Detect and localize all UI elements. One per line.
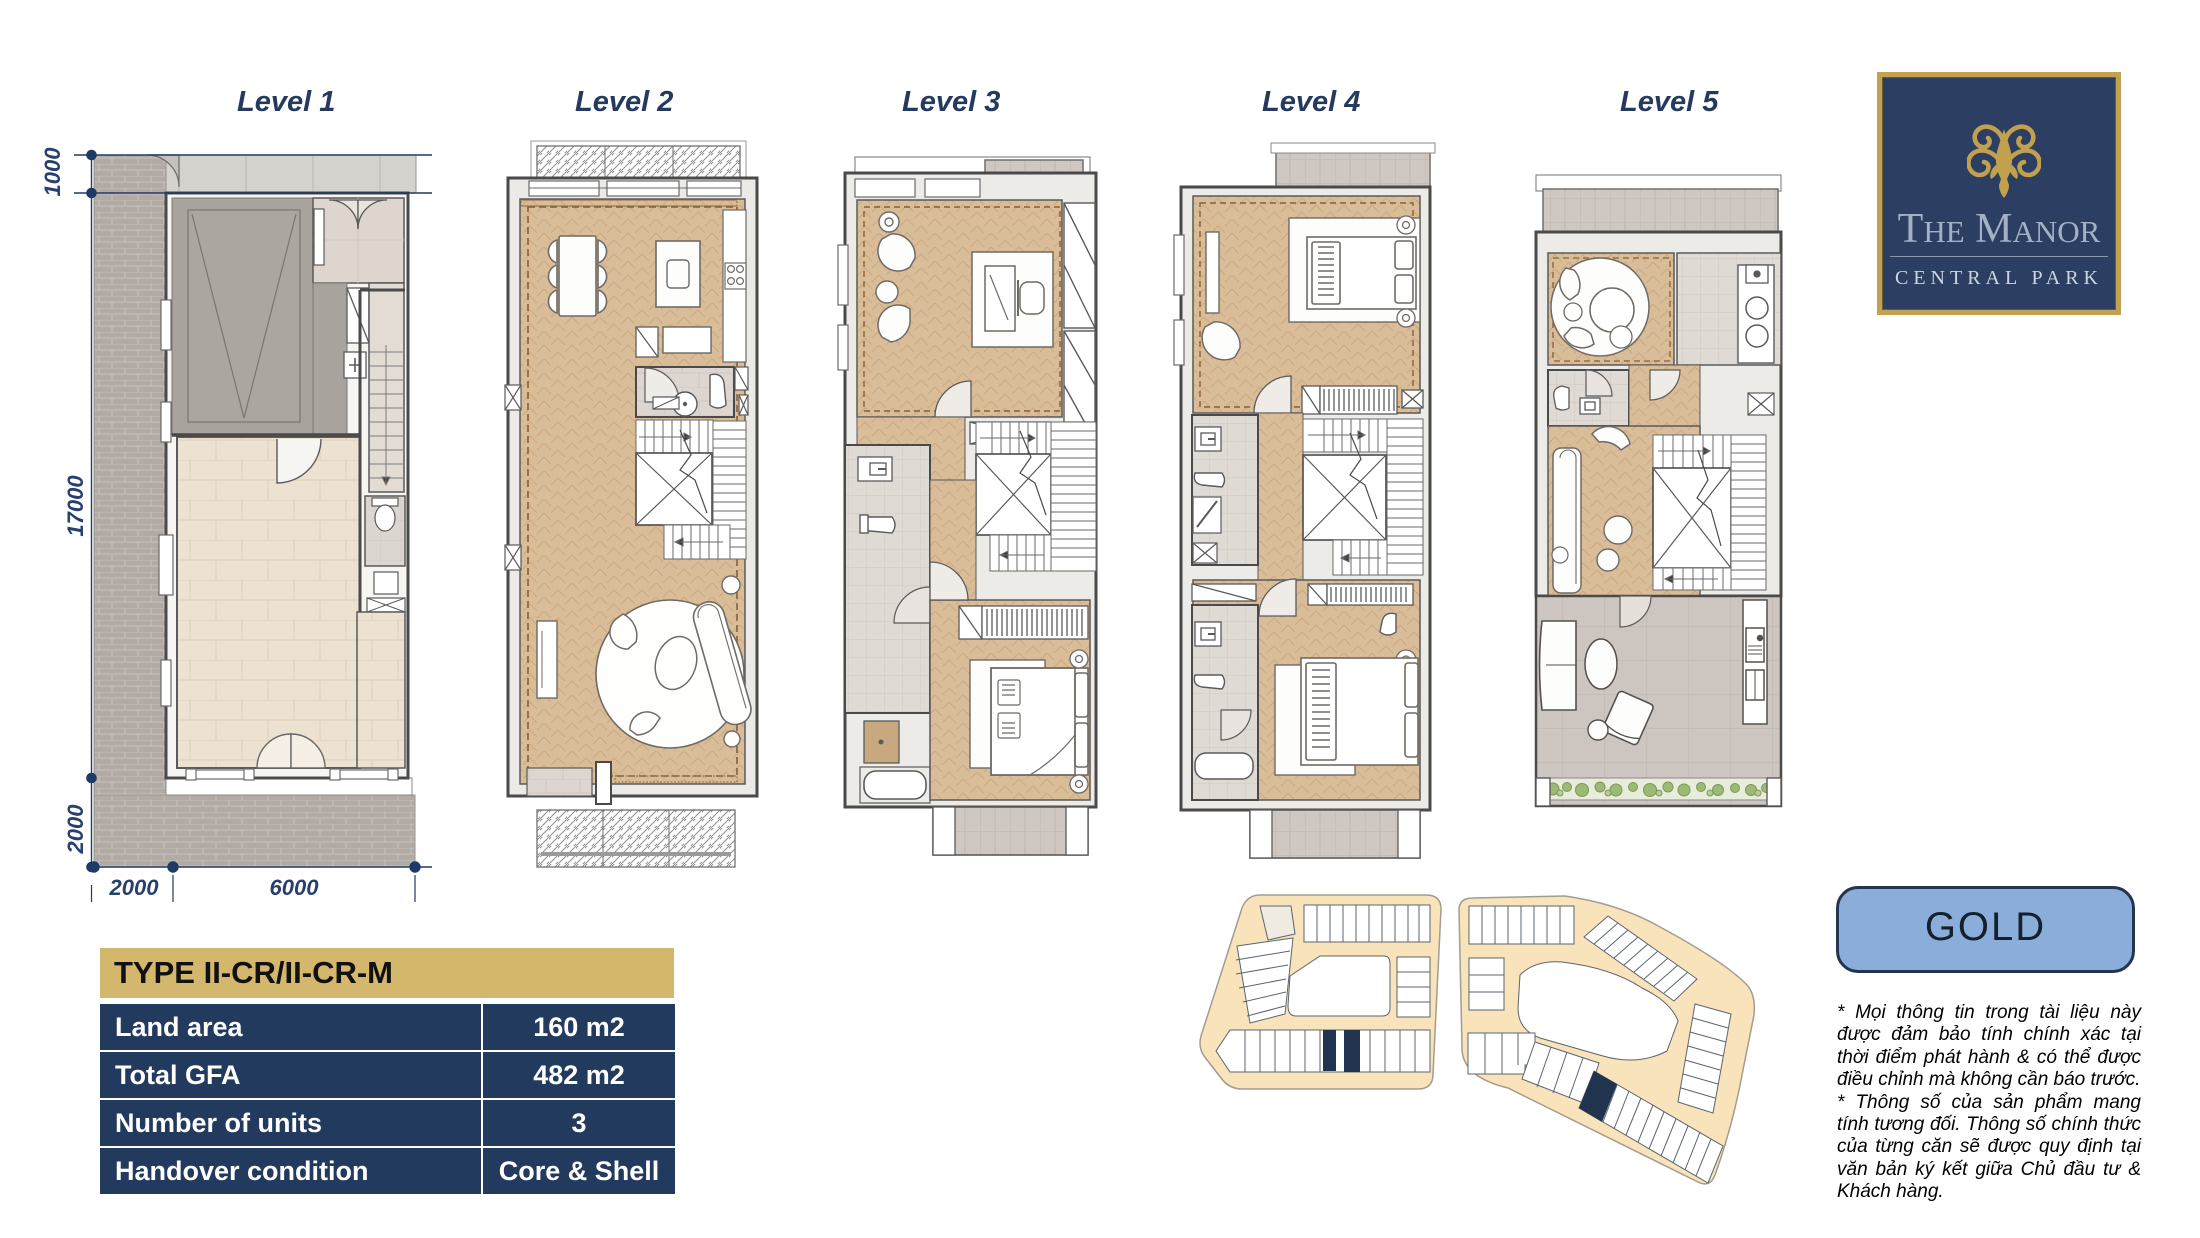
svg-text:2000: 2000 <box>109 875 160 900</box>
svg-text:6000: 6000 <box>270 875 320 900</box>
